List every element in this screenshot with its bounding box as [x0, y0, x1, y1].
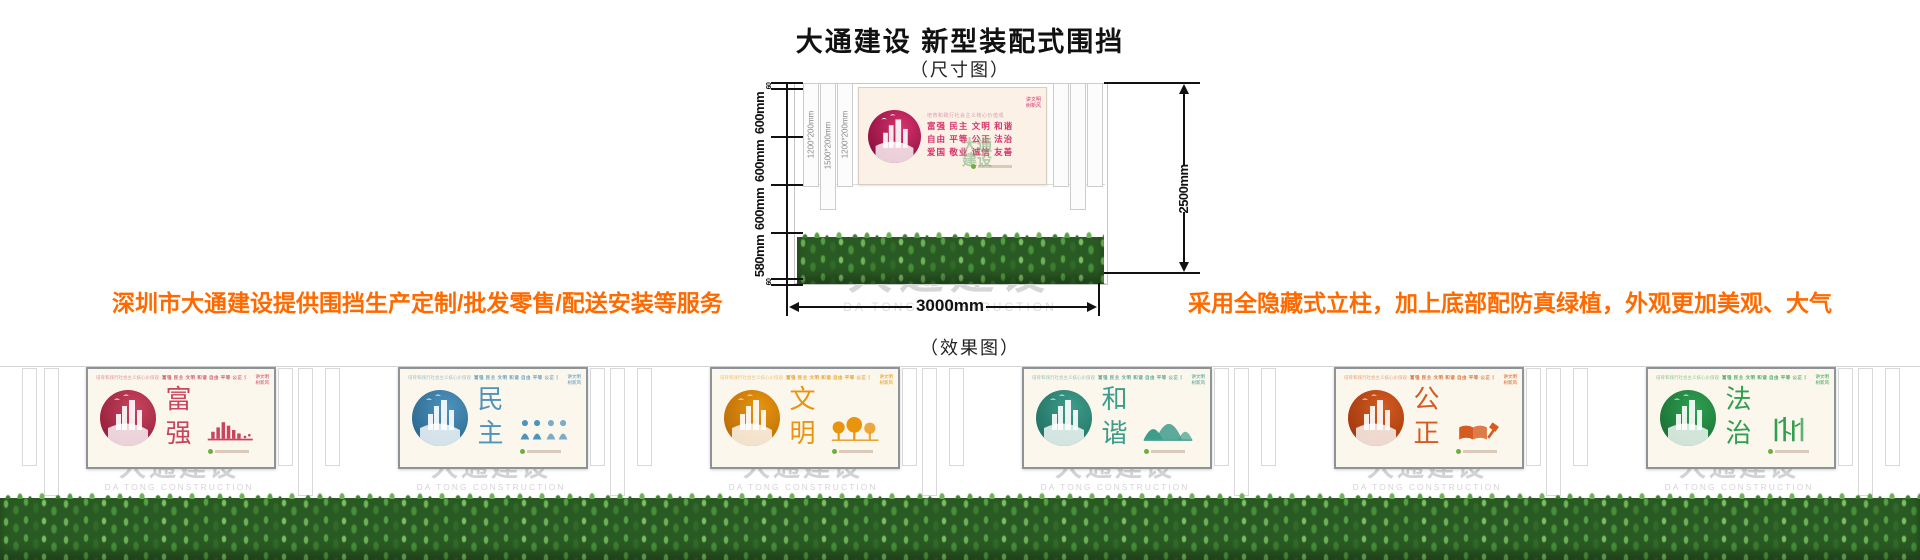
papercut-circle-art: [724, 390, 780, 446]
wall-groove-slot: [922, 368, 937, 496]
panel-values-line: 培育和践行社会主义核心价值观富强 民主 文明 和谐 自由 平等 公正 法治 爱国…: [1032, 375, 1182, 381]
wall-groove-slot: [590, 368, 605, 466]
grass-hedge-row: [0, 498, 1920, 560]
papercut-circle-art: [1348, 390, 1404, 446]
green-dot-icon: [1456, 449, 1461, 454]
post-size-label: 1200*200mm: [807, 85, 816, 185]
papercut-circle-art: [868, 110, 921, 163]
panel-caption: [1144, 449, 1185, 454]
wall-groove-slot: [1885, 368, 1900, 466]
panel-corner-text: 讲文明树新风: [568, 374, 582, 385]
post-size-label: 1200*200mm: [841, 85, 850, 185]
dim-label-60-bottom: 60: [765, 272, 775, 292]
wall-groove-slot: [278, 368, 293, 466]
wall-groove-slot: [610, 368, 625, 496]
wall-groove-slot: [949, 368, 964, 466]
panel-caption: [832, 449, 873, 454]
wall-groove-slot: [1838, 368, 1853, 466]
extension-line: [1104, 272, 1200, 274]
wall-groove-slot: [325, 368, 340, 466]
wall-groove-slot: [22, 368, 37, 466]
page-title: 大通建设 新型装配式围挡: [0, 20, 1920, 59]
hidden-post: [1087, 83, 1103, 187]
panel-values-line: 培育和践行社会主义核心价值观富强 民主 文明 和谐 自由 平等 公正 法治 爱国…: [1344, 375, 1494, 381]
wall-groove-slot: [1214, 368, 1229, 466]
service-note: 深圳市大通建设提供围挡生产定制/批发零售/配送安装等服务: [112, 284, 723, 318]
wall-groove-slot: [637, 368, 652, 466]
brand-mini-watermark: 大通 建设: [959, 138, 995, 168]
panel-values-line: 培育和践行社会主义核心价值观富强 民主 文明 和谐 自由 平等 公正 法治 爱国…: [1656, 375, 1806, 381]
poster-canvas: 大通建设 新型装配式围挡 （尺寸图） 1200*200mm 1500*200mm…: [0, 0, 1920, 560]
panel-corner-text: 讲文明树新风: [880, 374, 894, 385]
panel-title: 和谐: [1100, 385, 1132, 455]
panel-title: 民主: [476, 385, 508, 455]
hidden-post: 1500*200mm: [820, 83, 836, 210]
papercut-circle-art: [1660, 390, 1716, 446]
dimension-tick: [771, 136, 803, 138]
banner-corner-text: 讲文明 树新风: [1026, 97, 1041, 109]
hidden-post: [1070, 83, 1086, 210]
dim-label-3000: 3000mm: [880, 296, 1020, 316]
banner-tagline: 培育和践行社会主义核心价值观: [927, 112, 1004, 119]
dimension-arrow-left: [789, 302, 799, 312]
panel-caption: [1456, 449, 1497, 454]
wall-groove-slot: [1573, 368, 1588, 466]
papercut-circle-art: [100, 390, 156, 446]
panel-values-line: 培育和践行社会主义核心价值观富强 民主 文明 和谐 自由 平等 公正 法治 爱国…: [408, 375, 558, 381]
mountains-icon: [1142, 417, 1194, 443]
size-diagram-label: （尺寸图）: [0, 56, 1920, 82]
fence-banner-panel-fuqiang: 培育和践行社会主义核心价值观富强 民主 文明 和谐 自由 平等 公正 法治 爱国…: [86, 367, 276, 469]
post-size-label: 1500*200mm: [824, 96, 833, 196]
effect-view-label: （效果图）: [0, 334, 1920, 360]
panel-corner-text: 讲文明树新风: [1192, 374, 1206, 385]
dimension-tick: [771, 232, 803, 234]
skyline-bars-icon: [206, 417, 258, 443]
city-cutout-icon: [868, 110, 921, 163]
panel-corner-text: 讲文明树新风: [1504, 374, 1518, 385]
dimension-tick: [771, 88, 803, 90]
fence-banner-panel-minzhu: 培育和践行社会主义核心价值观富强 民主 文明 和谐 自由 平等 公正 法治 爱国…: [398, 367, 588, 469]
dimension-tick: [771, 82, 803, 84]
green-dot-icon: [1768, 449, 1773, 454]
feature-note: 采用全隐藏式立柱，加上底部配防真绿植，外观更加美观、大气: [1188, 284, 1832, 318]
dimension-arrow-right: [1087, 302, 1097, 312]
green-dot-icon: [1144, 449, 1149, 454]
bamboo-icon: [1766, 417, 1818, 443]
wall-groove-slot: [1546, 368, 1561, 496]
papercut-circle-art: [412, 390, 468, 446]
green-dot-icon: [832, 449, 837, 454]
fence-banner-panel-wenming: 培育和践行社会主义核心价值观富强 民主 文明 和谐 自由 平等 公正 法治 爱国…: [710, 367, 900, 469]
panel-caption: [520, 449, 561, 454]
fence-banner-panel-fazhi: 培育和践行社会主义核心价值观富强 民主 文明 和谐 自由 平等 公正 法治 爱国…: [1646, 367, 1836, 469]
dimension-arrow-up: [1179, 84, 1189, 94]
dimension-arrow-down: [1179, 262, 1189, 272]
dim-label-600: 600mm: [753, 136, 767, 186]
panel-title: 法治: [1724, 385, 1756, 455]
wall-groove-slot: [1234, 368, 1249, 496]
people-figures-icon: [518, 417, 570, 443]
hidden-post: 1200*200mm: [803, 83, 819, 187]
hidden-post: 1200*200mm: [837, 83, 853, 187]
panel-caption: [208, 449, 249, 454]
papercut-circle-art: [1036, 390, 1092, 446]
green-dot-icon: [208, 449, 213, 454]
dimension-tick: [771, 184, 803, 186]
dim-label-600: 600mm: [753, 184, 767, 234]
panel-title: 公正: [1412, 385, 1444, 455]
wall-groove-slot: [1858, 368, 1873, 496]
extension-line: [786, 285, 788, 316]
panel-corner-text: 讲文明树新风: [256, 374, 270, 385]
values-row: 富强 民主 文明 和谐: [927, 120, 1027, 132]
panel-corner-text: 讲文明树新风: [1816, 374, 1830, 385]
trees-icon: [830, 417, 882, 443]
panel-caption: [1768, 449, 1809, 454]
dimension-tick: [771, 278, 803, 280]
green-dot-icon: [520, 449, 525, 454]
wall-groove-slot: [298, 368, 313, 496]
hidden-post: [1053, 83, 1069, 187]
panel-title: 富强: [164, 385, 196, 455]
core-values-banner: 培育和践行社会主义核心价值观 富强 民主 文明 和谐 自由 平等 公正 法治 爱…: [858, 87, 1047, 185]
fence-banner-panel-hexie: 培育和践行社会主义核心价值观富强 民主 文明 和谐 自由 平等 公正 法治 爱国…: [1022, 367, 1212, 469]
dim-label-600: 600mm: [753, 88, 767, 138]
extension-line: [1098, 283, 1100, 316]
dim-label-2500: 2500mm: [1177, 149, 1191, 229]
wall-groove-slot: [1526, 368, 1541, 466]
wall-groove-slot: [902, 368, 917, 466]
panel-values-line: 培育和践行社会主义核心价值观富强 民主 文明 和谐 自由 平等 公正 法治 爱国…: [96, 375, 246, 381]
fence-banner-panel-gongzheng: 培育和践行社会主义核心价值观富强 民主 文明 和谐 自由 平等 公正 法治 爱国…: [1334, 367, 1524, 469]
panel-title: 文明: [788, 385, 820, 455]
grass-hedge-mini: [797, 237, 1104, 284]
book-gavel-icon: [1454, 417, 1506, 443]
panel-values-line: 培育和践行社会主义核心价值观富强 民主 文明 和谐 自由 平等 公正 法治 爱国…: [720, 375, 870, 381]
wall-groove-slot: [44, 368, 59, 496]
wall-groove-slot: [1261, 368, 1276, 466]
